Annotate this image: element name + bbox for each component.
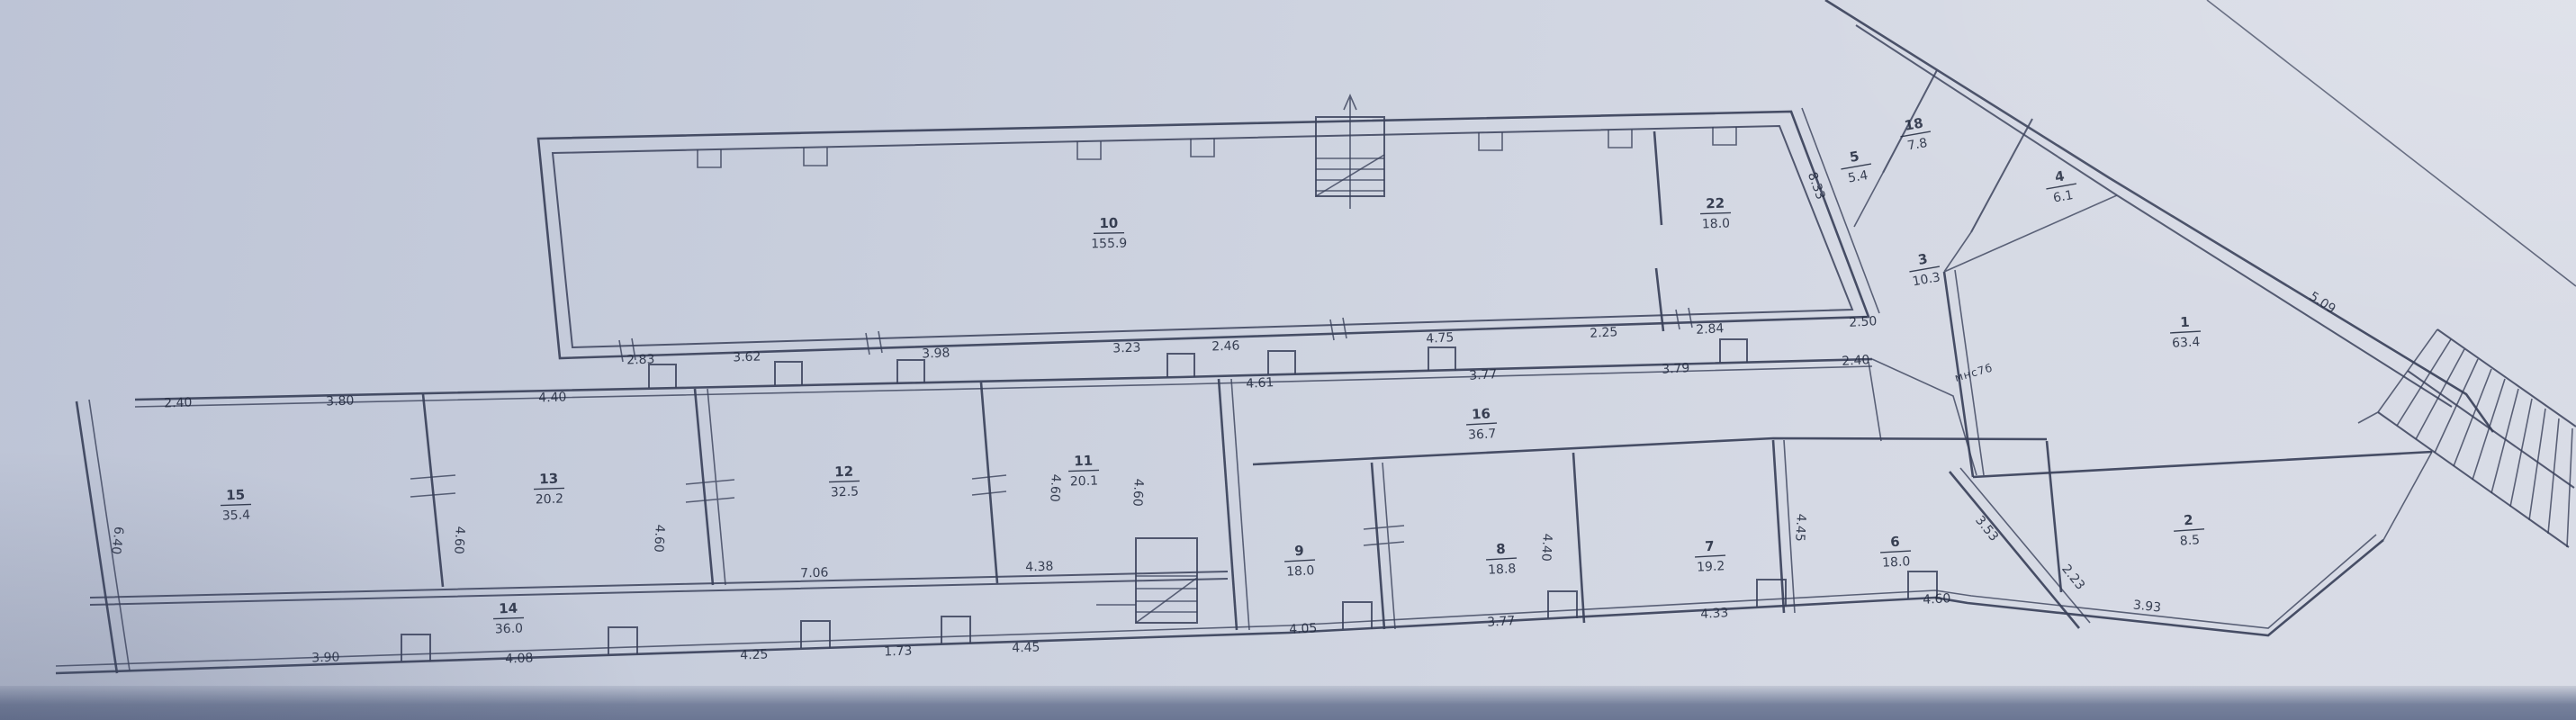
dim-label: 4.45: [1792, 513, 1808, 542]
room-area: 18.8: [1488, 562, 1517, 578]
dim-label: 4.40: [1538, 533, 1554, 562]
dim-label: 2.46: [1211, 338, 1240, 354]
dim-label: 3.53: [1972, 513, 2001, 544]
room-label: 1636.7: [1465, 405, 1498, 443]
room-label: 618.0: [1879, 533, 1912, 571]
room-fraction-line: [1094, 233, 1124, 234]
room-label: 1436.0: [492, 599, 524, 636]
dim-label: 3.62: [733, 349, 761, 364]
room-fraction-line: [1695, 555, 1725, 557]
room-area: 10.3: [1912, 270, 1941, 289]
room-area: 20.1: [1070, 473, 1099, 489]
room-fraction-line: [221, 504, 251, 505]
stair-external: [2358, 329, 2576, 547]
partition-12-11: [981, 382, 997, 583]
room-num: 14: [499, 600, 518, 617]
room-fraction-line: [1700, 212, 1731, 213]
dim-label: 4.60: [1923, 591, 1951, 607]
room-num: 10: [1099, 215, 1118, 231]
dim-label: 2.23: [2058, 562, 2087, 592]
room-label: 310.3: [1906, 248, 1942, 289]
dim-label: 2.83: [626, 352, 655, 367]
room-area: 19.2: [1697, 559, 1725, 575]
dim-label: 3.77: [1469, 367, 1498, 383]
dim-label: 4.05: [1289, 621, 1318, 637]
note-labels: мнс7б: [1953, 361, 1995, 383]
room-area: 8.5: [2179, 533, 2200, 549]
stair-direction-arrow: [1344, 95, 1356, 209]
dim-label: 4.75: [1426, 330, 1455, 346]
room-num: 2: [2183, 512, 2193, 529]
room-fraction-line: [493, 617, 524, 618]
room-fraction-line: [1466, 423, 1497, 425]
dim-label: 1.73: [884, 643, 913, 659]
room-area: 36.7: [1468, 427, 1497, 443]
room-area: 20.2: [536, 491, 564, 507]
room1-right-wall: [2383, 452, 2432, 540]
dim-label: 3.77: [1487, 614, 1516, 630]
bottom-outer-wall-inner: [56, 535, 2376, 666]
fence-diagonal: [2207, 0, 2576, 286]
room-label: 918.0: [1283, 542, 1316, 580]
room-label: 28.5: [2173, 511, 2206, 549]
dim-label: 3.90: [311, 650, 340, 665]
table-edge-shadow: [0, 686, 2576, 720]
room-num: 3: [1917, 250, 1929, 268]
floor-plan-drawing: 10155.92218.0187.855.446.1310.3163.428.5…: [0, 0, 2576, 720]
partition-7-6: [1773, 440, 1784, 613]
room-area: 155.9: [1091, 237, 1127, 252]
room-area: 18.0: [1702, 216, 1731, 231]
dim-label: 4.40: [538, 390, 567, 405]
room-fraction-line: [1068, 470, 1099, 471]
room-fraction-line: [1284, 560, 1315, 562]
dim-label: 3.98: [922, 346, 950, 361]
room-fraction-line: [1880, 551, 1911, 553]
dim-label: 4.25: [740, 647, 769, 662]
corridor-bottom-wall-inner: [135, 366, 1872, 407]
dim-label: 7.06: [800, 565, 829, 580]
room-num: 22: [1706, 195, 1725, 212]
room-area: 7.8: [1906, 136, 1929, 154]
room-area: 18.0: [1286, 563, 1315, 580]
dim-label: 2.40: [164, 395, 193, 410]
dim-label: 4.61: [1246, 375, 1274, 391]
dim-label: 3.80: [326, 393, 355, 409]
dim-label: 4.45: [1012, 640, 1040, 655]
dim-label: 4.08: [505, 651, 534, 666]
street-inner-diagonal: [1856, 25, 2452, 407]
room-area: 6.1: [2052, 188, 2075, 206]
room-label: 719.2: [1694, 537, 1726, 575]
room-num: 5: [1849, 148, 1860, 166]
room-label: 2218.0: [1699, 194, 1731, 231]
dim-label: 4.38: [1025, 559, 1054, 574]
dim-label: 4.60: [451, 526, 467, 554]
room1-bottom-wall: [1973, 452, 2432, 477]
room-label: 55.4: [1838, 146, 1874, 186]
floor-plan-photo: 10155.92218.0187.855.446.1310.3163.428.5…: [0, 0, 2576, 720]
room-area: 5.4: [1847, 168, 1869, 186]
dim-label: 2.40: [1842, 353, 1870, 369]
partition-15-13: [423, 394, 443, 587]
room-label: 163.4: [2169, 313, 2202, 351]
room-label: 1535.4: [220, 486, 251, 523]
room-area: 35.4: [222, 508, 251, 523]
dim-label: 3.93: [2132, 598, 2162, 615]
room-label: 1320.2: [533, 470, 564, 507]
dim-label: 2.84: [1696, 321, 1725, 337]
room-label: 1120.1: [1067, 452, 1099, 489]
room2-left-diagonal-b: [1960, 468, 2090, 623]
room-fraction-line: [829, 481, 860, 481]
corridor-bottom-wall: [135, 359, 1872, 400]
room-num: 13: [539, 471, 558, 488]
room2-left-diagonal: [1950, 472, 2079, 628]
room-fraction-line: [1486, 558, 1517, 560]
partition-9-8: [1372, 463, 1384, 629]
room-area: 63.4: [2172, 335, 2201, 351]
room-num: 1: [2180, 314, 2190, 331]
room-num: 4: [2054, 167, 2066, 185]
corridor-pilasters: [649, 339, 1747, 388]
room16-right-wall: [1869, 362, 1881, 441]
dim-label: 3.79: [1662, 361, 1690, 377]
partition-8-7: [1573, 453, 1584, 623]
dim-label: 4.33: [1700, 606, 1729, 622]
room-num: 8: [1496, 541, 1506, 558]
corridor14-top-wall: [90, 571, 1228, 605]
street-outer-diagonal: [1825, 0, 2493, 432]
dim-label: 4.60: [1130, 478, 1146, 507]
room-label: 818.8: [1485, 540, 1518, 578]
room-area: 36.0: [495, 621, 524, 636]
note-label: мнс7б: [1953, 361, 1995, 383]
room-fraction-line: [2170, 331, 2201, 333]
room-num: 15: [226, 487, 245, 504]
room-label: 10155.9: [1091, 215, 1128, 252]
room-num: 12: [834, 463, 853, 481]
dim-label: 2.50: [1849, 314, 1878, 330]
dim-label: 6.40: [108, 526, 126, 555]
rooms-top-wall: [1253, 438, 2047, 464]
room-num: 7: [1705, 538, 1715, 555]
cluster-partition-3: [1854, 173, 2117, 272]
room-label: 46.1: [2043, 166, 2079, 206]
room-num: 11: [1074, 453, 1093, 470]
room-fraction-line: [2174, 529, 2204, 531]
stair-top: [1316, 95, 1384, 209]
room-fraction-line: [534, 488, 564, 489]
room-area: 18.0: [1882, 554, 1911, 571]
room22-partition: [1654, 131, 1663, 331]
dim-label: 2.25: [1590, 325, 1618, 341]
room-num: 6: [1890, 534, 1900, 551]
dim-label: 4.60: [651, 524, 667, 553]
partition-9-8b: [1364, 463, 1404, 629]
room-num: 9: [1294, 543, 1304, 560]
hall-door-ticks: [619, 308, 1692, 362]
dim-label: 4.60: [1047, 473, 1063, 502]
bottom-outer-wall: [56, 540, 2383, 673]
room-num: 16: [1472, 405, 1491, 422]
room-area: 32.5: [831, 484, 860, 499]
cluster-partition-2: [1971, 119, 2032, 232]
room-num: 18: [1903, 114, 1924, 133]
room-label: 1232.5: [828, 463, 860, 499]
dim-label: 3.23: [1112, 340, 1141, 355]
